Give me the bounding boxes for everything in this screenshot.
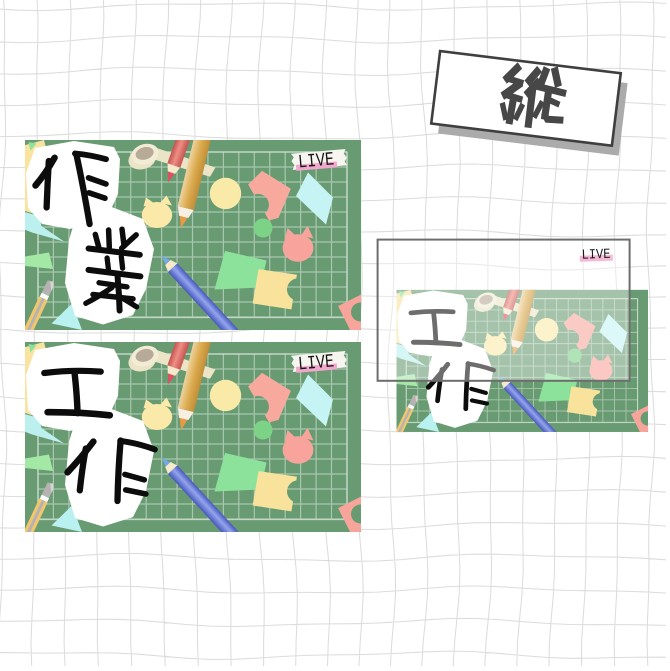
svg-text:LIVE: LIVE xyxy=(581,247,611,264)
